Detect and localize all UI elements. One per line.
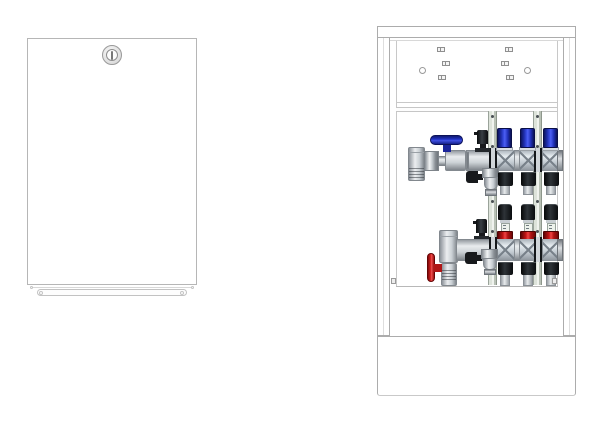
manifold-outlet bbox=[542, 239, 558, 261]
flow-meter-knob bbox=[521, 204, 535, 220]
panel-hole bbox=[524, 67, 531, 74]
panel-corner-screw bbox=[391, 278, 396, 284]
bracket-clamp bbox=[534, 237, 542, 262]
bracket-screw bbox=[536, 230, 539, 233]
bracket-screw bbox=[491, 230, 494, 233]
air-vent bbox=[476, 219, 487, 233]
panel-corner-screw bbox=[552, 278, 557, 284]
actuator-cap-blue bbox=[497, 128, 512, 148]
cabinet-plinth bbox=[377, 336, 576, 396]
loop-connection-nut bbox=[544, 262, 559, 275]
panel-slot bbox=[438, 75, 446, 80]
manifold-end-cap bbox=[557, 239, 563, 261]
union-ribs bbox=[409, 168, 424, 180]
union-ribs bbox=[442, 270, 456, 281]
ball-valve-stem bbox=[443, 145, 451, 152]
bracket-screw bbox=[491, 200, 494, 203]
loop-connection-nut bbox=[521, 172, 536, 186]
loop-connection-nut bbox=[521, 262, 536, 275]
loop-pipe-tail bbox=[546, 186, 556, 195]
panel-slot bbox=[437, 47, 445, 52]
illustration-canvas bbox=[0, 0, 600, 424]
inner-top-line bbox=[390, 40, 563, 41]
loop-pipe-tail bbox=[523, 275, 533, 286]
flow-meter-knob bbox=[544, 204, 558, 220]
loop-connection-nut bbox=[544, 172, 559, 186]
open-cabinet-figure bbox=[0, 0, 600, 424]
cabinet-right-post bbox=[563, 37, 576, 336]
drain-spout bbox=[485, 189, 497, 196]
manifold-outlet bbox=[542, 150, 558, 171]
panel-slot bbox=[501, 61, 509, 66]
loop-pipe-tail bbox=[500, 275, 510, 286]
loop-connection-nut bbox=[498, 262, 513, 275]
shutoff-valve-stem bbox=[434, 264, 442, 272]
air-vent bbox=[477, 130, 488, 144]
panel-slot bbox=[506, 75, 514, 80]
actuator-cap-blue bbox=[520, 128, 535, 148]
bracket-screw bbox=[536, 200, 539, 203]
panel-slot bbox=[442, 61, 450, 66]
panel-hole bbox=[419, 67, 426, 74]
inner-wall-line-left bbox=[396, 40, 397, 286]
bracket-screw bbox=[536, 115, 539, 118]
actuator-cap-blue bbox=[543, 128, 558, 148]
cabinet-top-rail bbox=[377, 26, 576, 38]
loop-pipe-tail bbox=[523, 186, 533, 195]
panel-divider-line bbox=[396, 102, 557, 103]
bracket-screw bbox=[491, 115, 494, 118]
manifold-end-cap bbox=[557, 150, 563, 171]
panel-slot bbox=[505, 47, 513, 52]
cabinet-left-post bbox=[377, 37, 390, 336]
ball-valve-body bbox=[445, 150, 466, 171]
drain-spout bbox=[484, 269, 496, 275]
bracket-clamp bbox=[534, 148, 542, 172]
loop-connection-nut bbox=[498, 172, 513, 186]
union-nut bbox=[424, 151, 439, 171]
loop-pipe-tail bbox=[500, 186, 510, 195]
flow-meter-knob bbox=[498, 204, 512, 220]
manifold-outlet bbox=[496, 239, 515, 261]
ball-valve-handle-blue bbox=[430, 135, 463, 145]
union-hex-line bbox=[440, 236, 457, 237]
air-vent-base bbox=[475, 148, 490, 152]
panel-bottom-line bbox=[396, 286, 558, 287]
union-hex-line bbox=[409, 152, 424, 153]
